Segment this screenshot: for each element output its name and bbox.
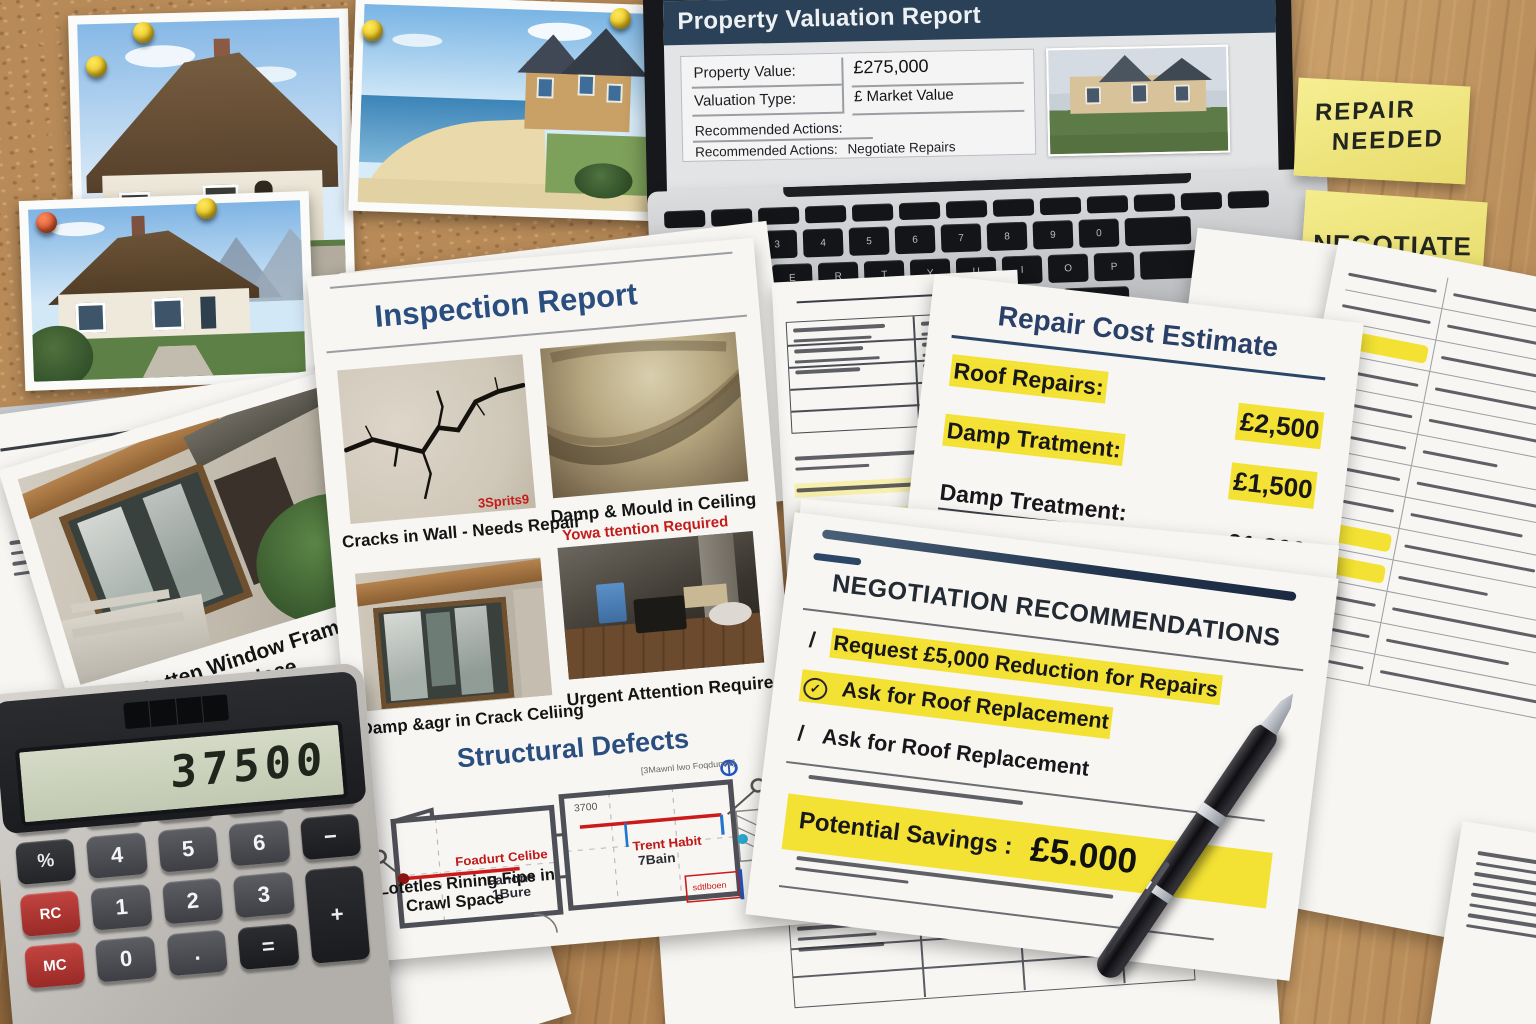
estimate-label: Damp Tratment: bbox=[945, 417, 1122, 463]
repair-estimate-title: Repair Cost Estimate bbox=[996, 300, 1279, 364]
pushpin-icon bbox=[86, 56, 107, 77]
illegible-text-line bbox=[1348, 272, 1437, 293]
field-label: Valuation Type: bbox=[694, 91, 796, 110]
illegible-text-line bbox=[1429, 340, 1436, 371]
laptop-function-key bbox=[993, 198, 1035, 216]
illegible-text-line bbox=[795, 356, 880, 364]
laptop-function-key bbox=[664, 210, 706, 228]
illegible-text-line bbox=[1374, 623, 1381, 654]
list-mark: / bbox=[808, 627, 817, 653]
illegible-text-line bbox=[1368, 654, 1375, 685]
illegible-text-line bbox=[1441, 278, 1448, 309]
pushpin-icon bbox=[36, 212, 57, 233]
plan-dimension: 3700 bbox=[574, 802, 599, 815]
calc-key-4: 4 bbox=[86, 832, 148, 879]
laptop-function-key bbox=[1134, 194, 1176, 212]
illegible-text-line bbox=[793, 324, 885, 332]
illegible-text-line bbox=[1405, 466, 1412, 497]
illegible-text-line bbox=[1398, 576, 1488, 597]
dark-room-photo bbox=[557, 531, 764, 680]
illegible-text-line bbox=[1435, 387, 1536, 410]
laptop-key-5: 5 bbox=[849, 227, 890, 256]
laptop-key-8: 8 bbox=[987, 222, 1028, 251]
calc-key-1: 1 bbox=[91, 884, 153, 931]
valuation-panel: Property Value: £275,000 Valuation Type:… bbox=[680, 49, 1036, 162]
plan-label: Foadurt Celibe bbox=[455, 846, 549, 869]
checkmark-icon: ✓ bbox=[802, 677, 829, 702]
illegible-text-line bbox=[795, 367, 860, 374]
laptop-key-9: 9 bbox=[1033, 220, 1074, 249]
illegible-text-line bbox=[798, 942, 884, 951]
sticky-note-repair: REPAIR NEEDED bbox=[1294, 78, 1471, 185]
plan-box-label: sdtlboen bbox=[692, 880, 727, 893]
laptop-function-key bbox=[805, 205, 847, 223]
screen-house-photo bbox=[1046, 45, 1230, 157]
illegible-text-line bbox=[1435, 309, 1442, 340]
laptop-function-key bbox=[946, 200, 988, 218]
illegible-text-line bbox=[1392, 529, 1399, 560]
estimate-label: Roof Repairs: bbox=[952, 357, 1105, 400]
pushpin-icon bbox=[196, 198, 217, 219]
damp-ceiling-photo bbox=[540, 332, 748, 499]
window-interior-photo bbox=[355, 558, 552, 712]
report-header: Property Valuation Report bbox=[663, 0, 1276, 45]
negotiation-item: Ask for Roof Replacement bbox=[821, 724, 1091, 781]
beach-house-illustration bbox=[358, 4, 657, 212]
illegible-text-line bbox=[1342, 304, 1431, 325]
savings-value: £5.000 bbox=[1028, 830, 1139, 882]
pushpin-icon bbox=[362, 20, 383, 41]
laptop-key-wide bbox=[1124, 216, 1191, 246]
actions-heading: Recommended Actions: bbox=[695, 120, 843, 139]
estimate-value: £1,500 bbox=[1232, 466, 1315, 506]
display-digits: 37500 bbox=[170, 734, 327, 799]
calc-key-0: 0 bbox=[95, 936, 157, 983]
desk-scene: Property Valuation Report Property Value… bbox=[0, 0, 1536, 1024]
crack-wall-photo: 3Sprits9 bbox=[337, 354, 536, 524]
illegible-text-line bbox=[1399, 497, 1406, 528]
laptop-function-key bbox=[1040, 197, 1082, 215]
laptop-function-key bbox=[1228, 190, 1270, 208]
plan-label: 7Bain bbox=[638, 850, 677, 868]
photo-beach-house bbox=[348, 0, 665, 221]
calc-key-2: 2 bbox=[162, 878, 224, 925]
illegible-text-line bbox=[1380, 592, 1387, 623]
actions-value: Negotiate Repairs bbox=[847, 139, 955, 156]
laptop-key-P: P bbox=[1094, 252, 1135, 281]
calc-key-RC: RC bbox=[20, 890, 82, 937]
illegible-text-line bbox=[1417, 403, 1424, 434]
illegible-text-line bbox=[794, 346, 864, 353]
floor-plan: Foadurt Celibe Fanons 1Bure Trent Habit … bbox=[363, 749, 800, 953]
calc-key-MC: MC bbox=[24, 942, 86, 989]
sticky-text: NEEDED bbox=[1331, 123, 1468, 158]
laptop-function-key bbox=[1181, 192, 1223, 210]
cottage-hills-illustration bbox=[28, 200, 306, 381]
calc-key-3: 3 bbox=[233, 871, 295, 918]
illegible-text-line bbox=[794, 335, 872, 343]
report-title: Property Valuation Report bbox=[663, 0, 1276, 36]
pushpin-icon bbox=[133, 22, 154, 43]
valuation-app-window: Property Valuation Report Property Value… bbox=[663, 0, 1279, 198]
laptop-function-key bbox=[852, 203, 894, 221]
estimate-value: £2,500 bbox=[1239, 406, 1322, 446]
illegible-text-line bbox=[1386, 560, 1393, 591]
laptop-function-key bbox=[1087, 195, 1129, 213]
calc-key-%: % bbox=[15, 838, 77, 885]
field-value: £275,000 bbox=[853, 56, 929, 79]
negotiation-item: Ask for Roof Replacement bbox=[840, 677, 1110, 734]
laptop-function-key bbox=[899, 202, 941, 220]
laptop-key-4: 4 bbox=[803, 228, 844, 257]
laptop-key-6: 6 bbox=[895, 225, 936, 254]
field-value: £ Market Value bbox=[854, 86, 954, 105]
calculator: 37500 ⌐MK✓%÷√789+%456−RC123+MC0.= bbox=[0, 662, 400, 1024]
inspection-title: Inspection Report bbox=[373, 276, 639, 335]
inspection-report-doc: Inspection Report 3Sprits9 Cracks in Wal… bbox=[307, 238, 813, 962]
calc-key-=: = bbox=[237, 923, 299, 970]
calc-key-+: + bbox=[304, 865, 370, 964]
pushpin-icon bbox=[610, 8, 631, 29]
illegible-text-line bbox=[1466, 923, 1536, 957]
plan-corner-note: [3Mawnl lwo Foqdunve] bbox=[640, 758, 735, 776]
calc-key-6: 6 bbox=[228, 819, 290, 866]
calc-key-−: − bbox=[299, 813, 361, 860]
illegible-text-line bbox=[1423, 372, 1430, 403]
photo-cottage-hills bbox=[19, 191, 315, 391]
laptop-key-O: O bbox=[1048, 254, 1089, 283]
actions-label: Recommended Actions: bbox=[695, 142, 838, 160]
field-label: Property Value: bbox=[693, 63, 796, 82]
illegible-text-line bbox=[1423, 450, 1498, 468]
illegible-text-line bbox=[1411, 435, 1418, 466]
calc-key-5: 5 bbox=[157, 826, 219, 873]
list-mark: / bbox=[796, 720, 805, 746]
illegible-text-line bbox=[798, 932, 877, 941]
laptop-key-7: 7 bbox=[941, 223, 982, 252]
solar-panel bbox=[123, 694, 229, 729]
illegible-text-line bbox=[795, 463, 869, 470]
laptop-key-0: 0 bbox=[1078, 218, 1119, 247]
calc-key-.: . bbox=[166, 929, 228, 976]
